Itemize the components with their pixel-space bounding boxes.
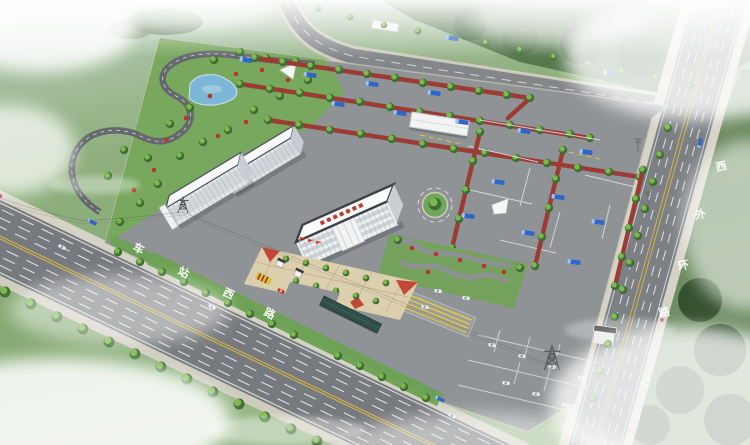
rendering-canvas: 车 站 西 路 西 外 环 路 <box>0 0 750 445</box>
roundabout <box>418 188 452 222</box>
aerial-site-rendering: 车 站 西 路 西 外 环 路 <box>0 0 750 445</box>
